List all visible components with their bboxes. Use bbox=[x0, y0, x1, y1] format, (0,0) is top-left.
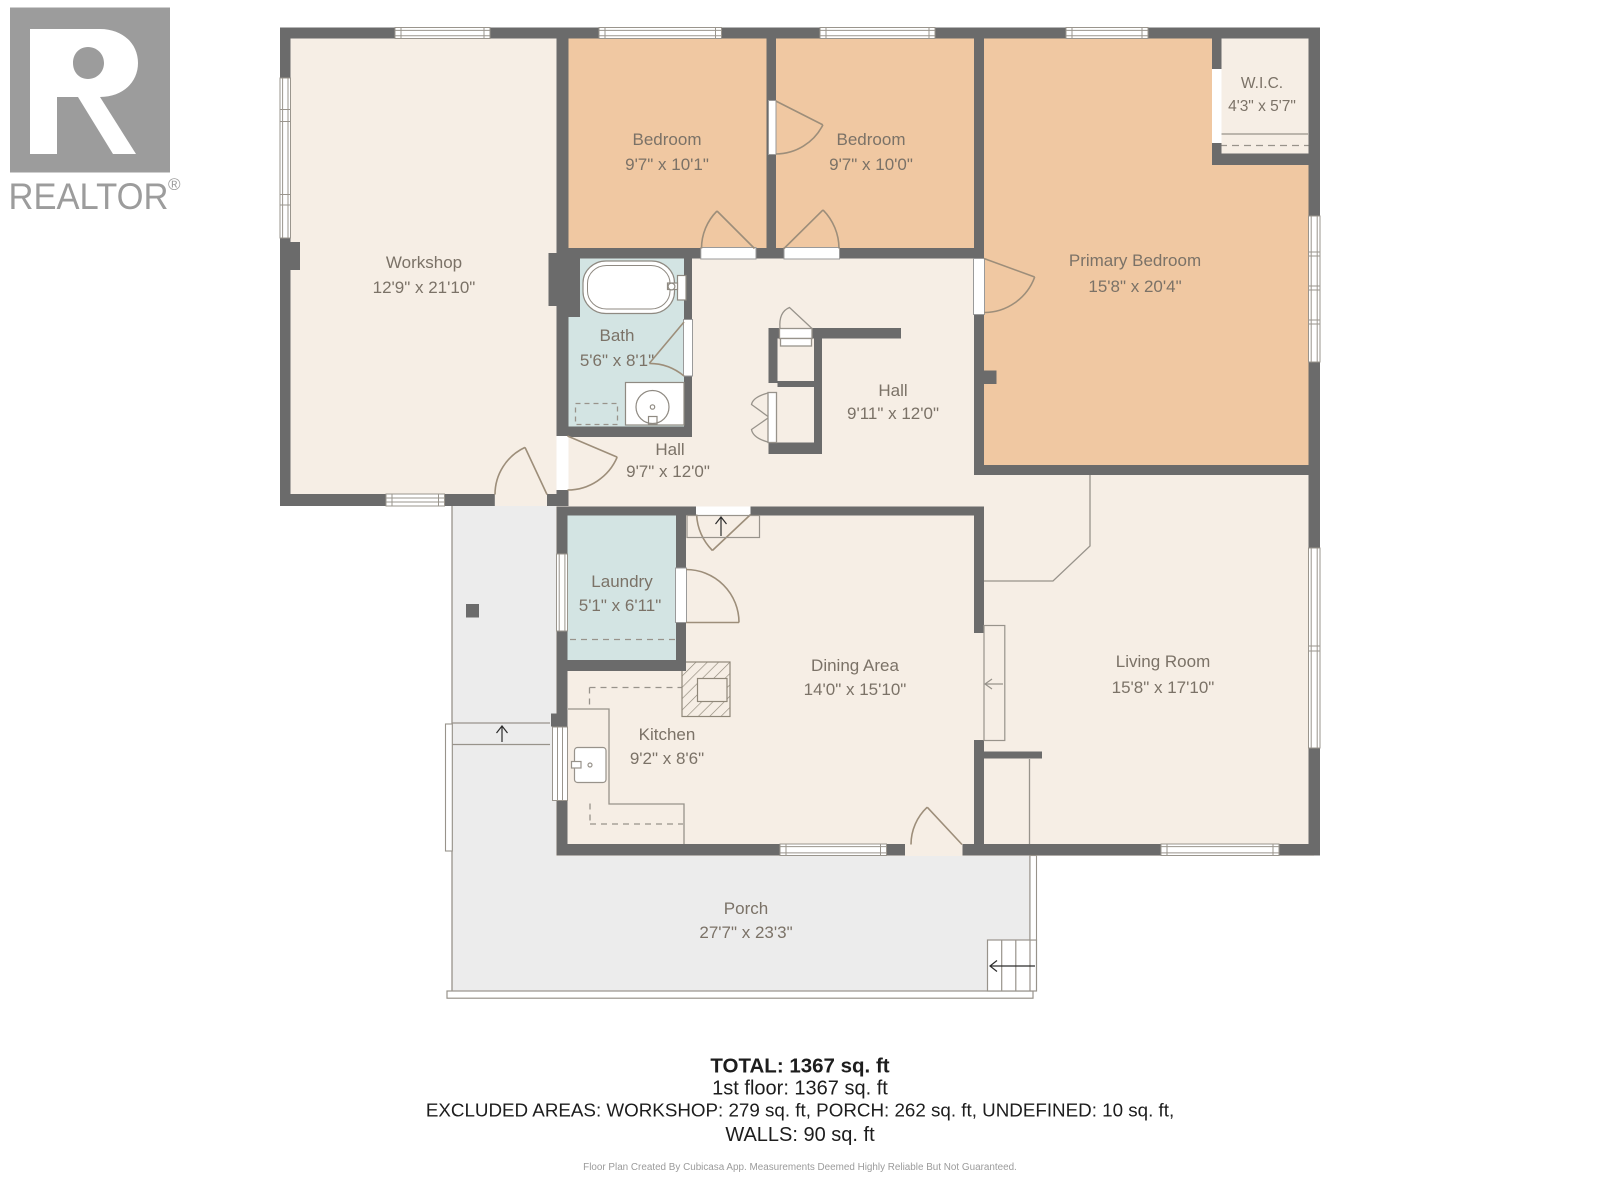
svg-text:9'2" x 8'6": 9'2" x 8'6" bbox=[630, 749, 704, 768]
svg-text:Bedroom: Bedroom bbox=[633, 130, 702, 149]
svg-text:REALTOR: REALTOR bbox=[9, 175, 169, 217]
svg-text:WALLS: 90 sq. ft: WALLS: 90 sq. ft bbox=[725, 1124, 875, 1146]
svg-text:5'6" x 8'1": 5'6" x 8'1" bbox=[580, 351, 654, 370]
svg-text:®: ® bbox=[168, 175, 181, 194]
svg-text:12'9" x 21'10": 12'9" x 21'10" bbox=[373, 278, 476, 297]
svg-text:Floor Plan Created By Cubicasa: Floor Plan Created By Cubicasa App. Meas… bbox=[583, 1162, 1017, 1173]
svg-text:9'7" x 10'0": 9'7" x 10'0" bbox=[829, 155, 913, 174]
svg-text:1st floor: 1367 sq. ft: 1st floor: 1367 sq. ft bbox=[712, 1078, 888, 1100]
svg-text:Hall: Hall bbox=[878, 381, 907, 400]
svg-text:Dining Area: Dining Area bbox=[811, 656, 899, 675]
svg-text:15'8" x 20'4": 15'8" x 20'4" bbox=[1088, 277, 1181, 296]
svg-text:9'7" x 12'0": 9'7" x 12'0" bbox=[626, 462, 710, 481]
svg-text:9'7" x 10'1": 9'7" x 10'1" bbox=[625, 155, 709, 174]
svg-text:Kitchen: Kitchen bbox=[639, 725, 696, 744]
svg-text:27'7" x 23'3": 27'7" x 23'3" bbox=[699, 923, 792, 942]
svg-text:TOTAL: 1367 sq. ft: TOTAL: 1367 sq. ft bbox=[710, 1055, 889, 1078]
svg-text:4'3" x 5'7": 4'3" x 5'7" bbox=[1228, 98, 1296, 115]
svg-text:W.I.C.: W.I.C. bbox=[1241, 75, 1283, 92]
svg-text:5'1" x 6'11": 5'1" x 6'11" bbox=[579, 596, 662, 615]
svg-text:EXCLUDED AREAS: WORKSHOP: 279: EXCLUDED AREAS: WORKSHOP: 279 sq. ft, PO… bbox=[426, 1100, 1174, 1121]
svg-text:Laundry: Laundry bbox=[591, 572, 653, 591]
svg-text:Primary Bedroom: Primary Bedroom bbox=[1069, 251, 1201, 270]
svg-text:14'0" x 15'10": 14'0" x 15'10" bbox=[804, 680, 907, 699]
svg-text:Hall: Hall bbox=[655, 440, 684, 459]
svg-text:Workshop: Workshop bbox=[386, 253, 462, 272]
svg-text:15'8" x 17'10": 15'8" x 17'10" bbox=[1112, 678, 1215, 697]
svg-text:Living Room: Living Room bbox=[1116, 652, 1211, 671]
svg-text:Bath: Bath bbox=[600, 326, 635, 345]
svg-text:Bedroom: Bedroom bbox=[837, 130, 906, 149]
svg-text:9'11" x 12'0": 9'11" x 12'0" bbox=[847, 404, 939, 423]
svg-text:Porch: Porch bbox=[724, 899, 768, 918]
